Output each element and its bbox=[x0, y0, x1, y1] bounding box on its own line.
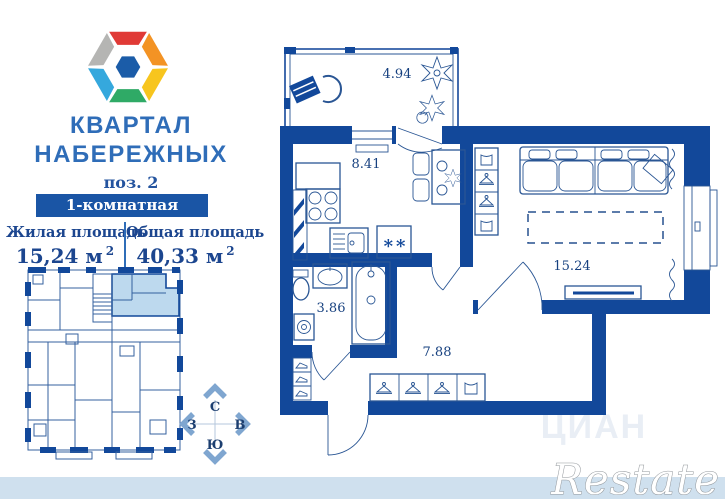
curtain-squiggle bbox=[670, 259, 675, 301]
hall-wardrobe bbox=[370, 374, 485, 401]
toilet bbox=[293, 270, 309, 300]
floorplan: 4.94 bbox=[280, 47, 717, 455]
shoe-icon bbox=[296, 377, 307, 382]
balcony-door bbox=[396, 126, 442, 152]
sofa-pillow bbox=[601, 150, 622, 159]
hanger-icon bbox=[405, 383, 421, 394]
radiator bbox=[356, 145, 388, 152]
kitchen-counter bbox=[296, 163, 340, 189]
shoe-icon bbox=[296, 391, 307, 396]
sofa bbox=[520, 147, 673, 194]
hanger-icon bbox=[479, 196, 494, 207]
entry-door-arc bbox=[328, 415, 368, 455]
room-area-balcony: 4.94 bbox=[383, 67, 412, 82]
balcony-chair bbox=[323, 76, 341, 102]
fridge-stars-label: ** bbox=[384, 236, 409, 257]
shoe-cabinet bbox=[293, 358, 311, 400]
dining-chair bbox=[413, 179, 429, 201]
wall-top bbox=[280, 126, 710, 144]
plant-icon bbox=[445, 169, 462, 187]
plant-icon bbox=[417, 95, 444, 123]
sofa-pillow bbox=[556, 150, 577, 159]
balcony: 4.94 bbox=[284, 47, 458, 127]
living-room: 15.24 bbox=[475, 147, 675, 301]
shirt-icon bbox=[481, 155, 492, 165]
hanger-icon bbox=[434, 383, 450, 394]
hanger-icon bbox=[479, 174, 494, 185]
minimap bbox=[25, 267, 183, 459]
bathroom-sink bbox=[313, 264, 347, 288]
room-area-hallway: 7.88 bbox=[423, 345, 452, 360]
living-door bbox=[478, 262, 542, 314]
kitchen-stove bbox=[306, 189, 340, 223]
room-area-living: 15.24 bbox=[553, 259, 590, 274]
dining-chair bbox=[413, 153, 429, 175]
walls bbox=[280, 126, 710, 415]
minimap-stairwell bbox=[93, 274, 112, 322]
bathroom-door bbox=[312, 345, 350, 380]
dining-table bbox=[413, 150, 465, 204]
balcony-wall-tick bbox=[284, 98, 290, 109]
shirt-icon bbox=[465, 383, 477, 394]
compass-west-label: З bbox=[187, 418, 196, 433]
minimap-balcony-bump bbox=[116, 452, 152, 459]
kitchen-door-arc bbox=[432, 267, 443, 290]
compass-east-label: В bbox=[235, 418, 246, 433]
sofa-pillow bbox=[628, 150, 649, 159]
kitchen: ** 8.41 bbox=[293, 150, 465, 260]
balcony-wall-tick bbox=[345, 47, 355, 53]
balcony-wall-tick bbox=[450, 47, 458, 54]
compass-south-label: Ю bbox=[207, 438, 224, 453]
plate bbox=[437, 161, 447, 171]
compass-north-label: С bbox=[210, 400, 220, 415]
balcony-desk bbox=[289, 76, 320, 104]
tv-stand bbox=[565, 286, 641, 299]
plan-canvas: ЦИАН bbox=[0, 0, 725, 499]
plant-icon bbox=[422, 57, 452, 89]
kitchen-door bbox=[432, 267, 460, 290]
window-sill bbox=[710, 190, 717, 266]
wardrobe-column bbox=[475, 148, 498, 235]
watermark-restate: Restate bbox=[550, 455, 720, 499]
washing-machine bbox=[294, 314, 314, 340]
sofa-pillow bbox=[529, 150, 550, 159]
minimap-highlighted-unit bbox=[112, 274, 179, 316]
room-area-kitchen: 8.41 bbox=[352, 157, 381, 172]
wall-hall-right bbox=[592, 313, 606, 415]
bed-zone-dashed bbox=[528, 212, 663, 243]
wall-left bbox=[280, 126, 293, 415]
shirt-icon bbox=[481, 221, 492, 231]
flyer: КВАРТАЛ НАБЕРЕЖНЫХ поз. 2 1-комнатная кв… bbox=[0, 0, 725, 499]
plate bbox=[437, 185, 447, 195]
curtain-squiggle bbox=[670, 149, 675, 189]
balcony-wall-tick bbox=[284, 47, 296, 54]
shoe-icon bbox=[296, 363, 307, 368]
minimap-balcony-bump bbox=[56, 452, 92, 459]
bathtub bbox=[352, 262, 390, 344]
compass-north-arrow-icon bbox=[205, 387, 225, 397]
kitchen-window bbox=[352, 126, 392, 152]
compass: С Ю З В bbox=[183, 387, 247, 461]
room-area-bathroom: 3.86 bbox=[317, 301, 346, 316]
hanger-icon bbox=[376, 383, 392, 394]
living-window bbox=[684, 186, 717, 270]
bathroom: 3.86 bbox=[293, 262, 390, 344]
wall-kitchen-living bbox=[460, 144, 473, 267]
entry-door bbox=[328, 401, 368, 455]
vent-shaft bbox=[293, 190, 307, 260]
